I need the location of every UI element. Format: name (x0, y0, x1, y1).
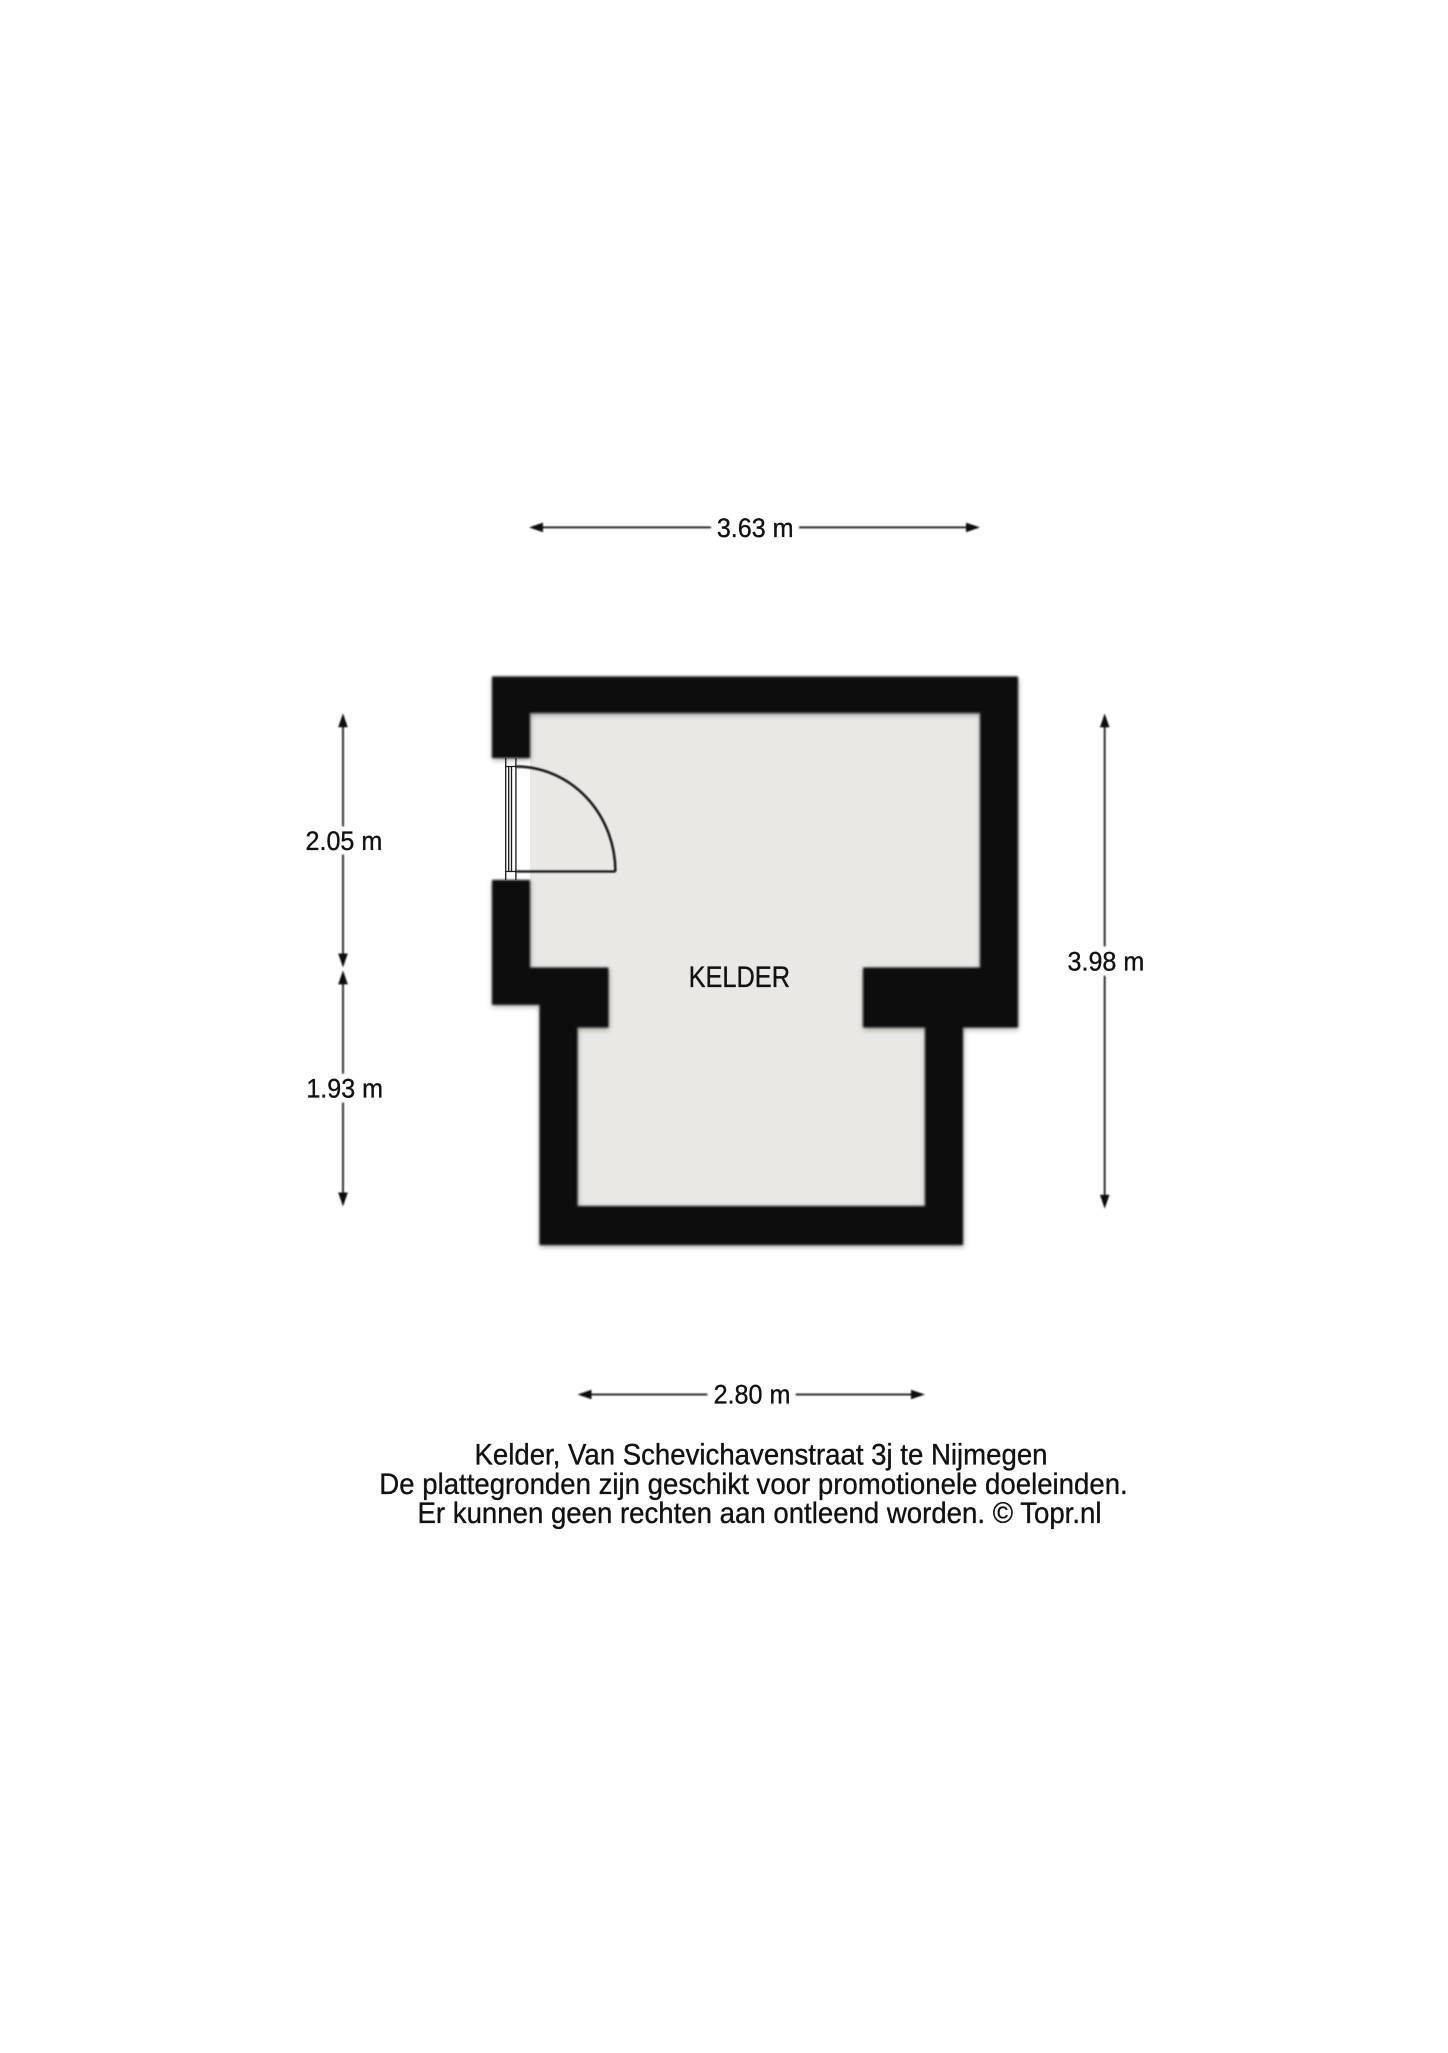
svg-text:3.63 m: 3.63 m (717, 512, 794, 543)
svg-text:2.80 m: 2.80 m (714, 1379, 791, 1410)
svg-text:KELDER: KELDER (689, 960, 790, 993)
svg-text:1.93 m: 1.93 m (306, 1073, 383, 1104)
svg-text:Kelder, Van Schevichavenstraat: Kelder, Van Schevichavenstraat 3j te Nij… (474, 1438, 1047, 1471)
svg-text:3.98 m: 3.98 m (1068, 946, 1145, 977)
svg-text:Er kunnen geen rechten aan ont: Er kunnen geen rechten aan ontleend word… (418, 1497, 1102, 1530)
svg-text:2.05 m: 2.05 m (306, 825, 383, 856)
